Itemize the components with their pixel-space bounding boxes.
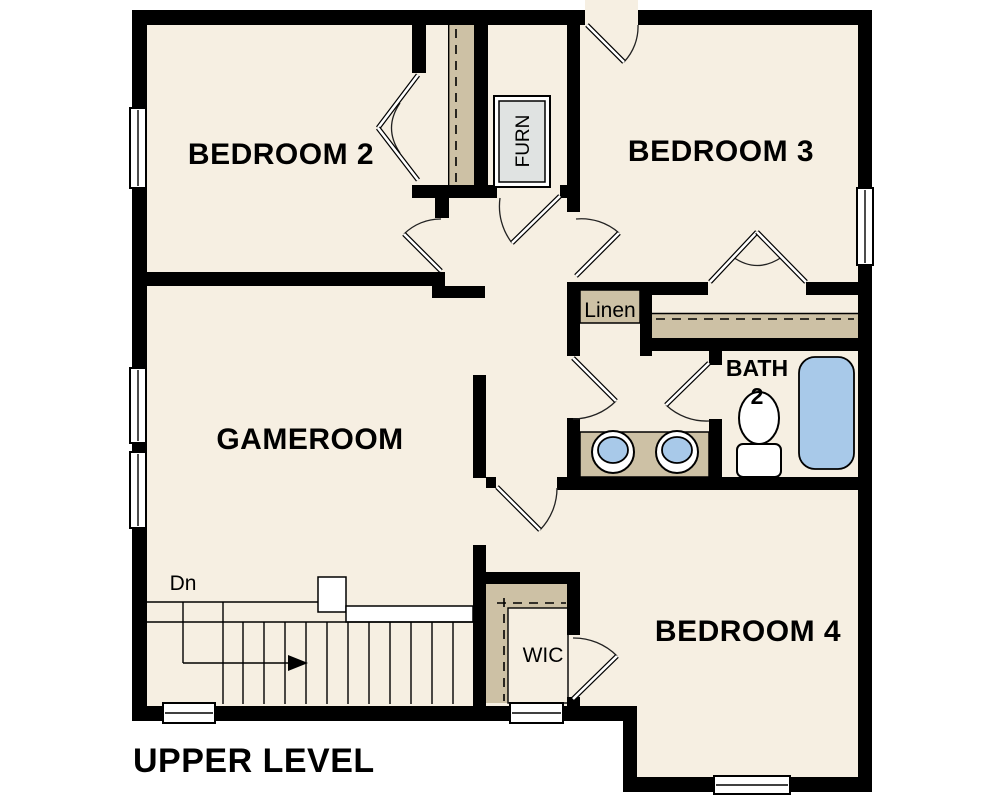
wall-bedroom2-closet-south: [412, 185, 497, 198]
bedroom2-closet-floor: [448, 25, 474, 185]
window-wic-bottom: [510, 703, 563, 723]
wall-bath-divider-stub: [709, 351, 722, 365]
floor-plan-drawing: FURN Linen: [0, 0, 1000, 800]
wall-bedroom2-south: [132, 272, 445, 286]
wall-bedroom3-closet-south: [652, 338, 858, 351]
sink-left: [592, 431, 634, 473]
wall-linen-west: [567, 282, 580, 356]
floor-plan-page: FURN Linen: [0, 0, 1000, 800]
wall-stairs-east: [473, 545, 486, 706]
wall-bedroom3-west: [567, 25, 580, 212]
wall-wic-east-upper: [567, 583, 580, 635]
window-bedroom3-right: [857, 188, 873, 265]
stairs-landing-band: [346, 606, 473, 622]
wall-vanity-west: [567, 418, 580, 477]
sink-right: [656, 431, 698, 473]
linen-label: Linen: [584, 299, 635, 322]
wall-linen-east: [640, 295, 652, 356]
wall-exterior-right: [858, 10, 872, 792]
bathtub: [799, 357, 854, 469]
bedroom4-label: BEDROOM 4: [655, 615, 841, 648]
wall-gameroom-north: [432, 286, 485, 298]
linen-closet: Linen: [580, 290, 640, 323]
wall-bedroom2-closet-west: [412, 25, 426, 73]
wall-bedroom3-south-right: [806, 282, 858, 295]
window-stairs-bottom: [163, 703, 215, 723]
wall-bath-south: [557, 477, 858, 490]
gameroom-label: GAMEROOM: [216, 423, 403, 456]
wall-gameroom-east: [473, 375, 486, 478]
wall-exterior-top: [132, 10, 872, 25]
bath-label-line2: 2: [751, 383, 764, 409]
top-doorway-notch: [585, 0, 638, 25]
wall-hall-stub: [435, 198, 449, 218]
furnace-label: FURN: [513, 115, 534, 168]
wall-furn-west: [474, 25, 488, 185]
bath-vanity: [580, 431, 709, 477]
wall-bedroom4-door-jamb: [486, 477, 496, 488]
stairs-step-box: [318, 577, 346, 612]
wall-wic-north: [473, 572, 580, 584]
wic-label: WIC: [523, 644, 564, 667]
bedroom3-closet-floor: [652, 313, 858, 338]
stairs-down-label: Dn: [170, 572, 197, 595]
bath-label-line1: BATH: [726, 355, 788, 381]
furnace-unit: FURN: [494, 96, 550, 187]
page-title: UPPER LEVEL: [133, 742, 375, 780]
window-gameroom-left-upper: [130, 368, 146, 443]
window-bedroom4-bottom: [714, 776, 790, 794]
wall-bath-divider-lower: [709, 419, 722, 477]
bedroom2-label: BEDROOM 2: [188, 138, 374, 171]
window-bedroom2-left: [130, 108, 146, 188]
window-gameroom-left-lower: [130, 452, 146, 528]
bedroom3-label: BEDROOM 3: [628, 135, 814, 168]
